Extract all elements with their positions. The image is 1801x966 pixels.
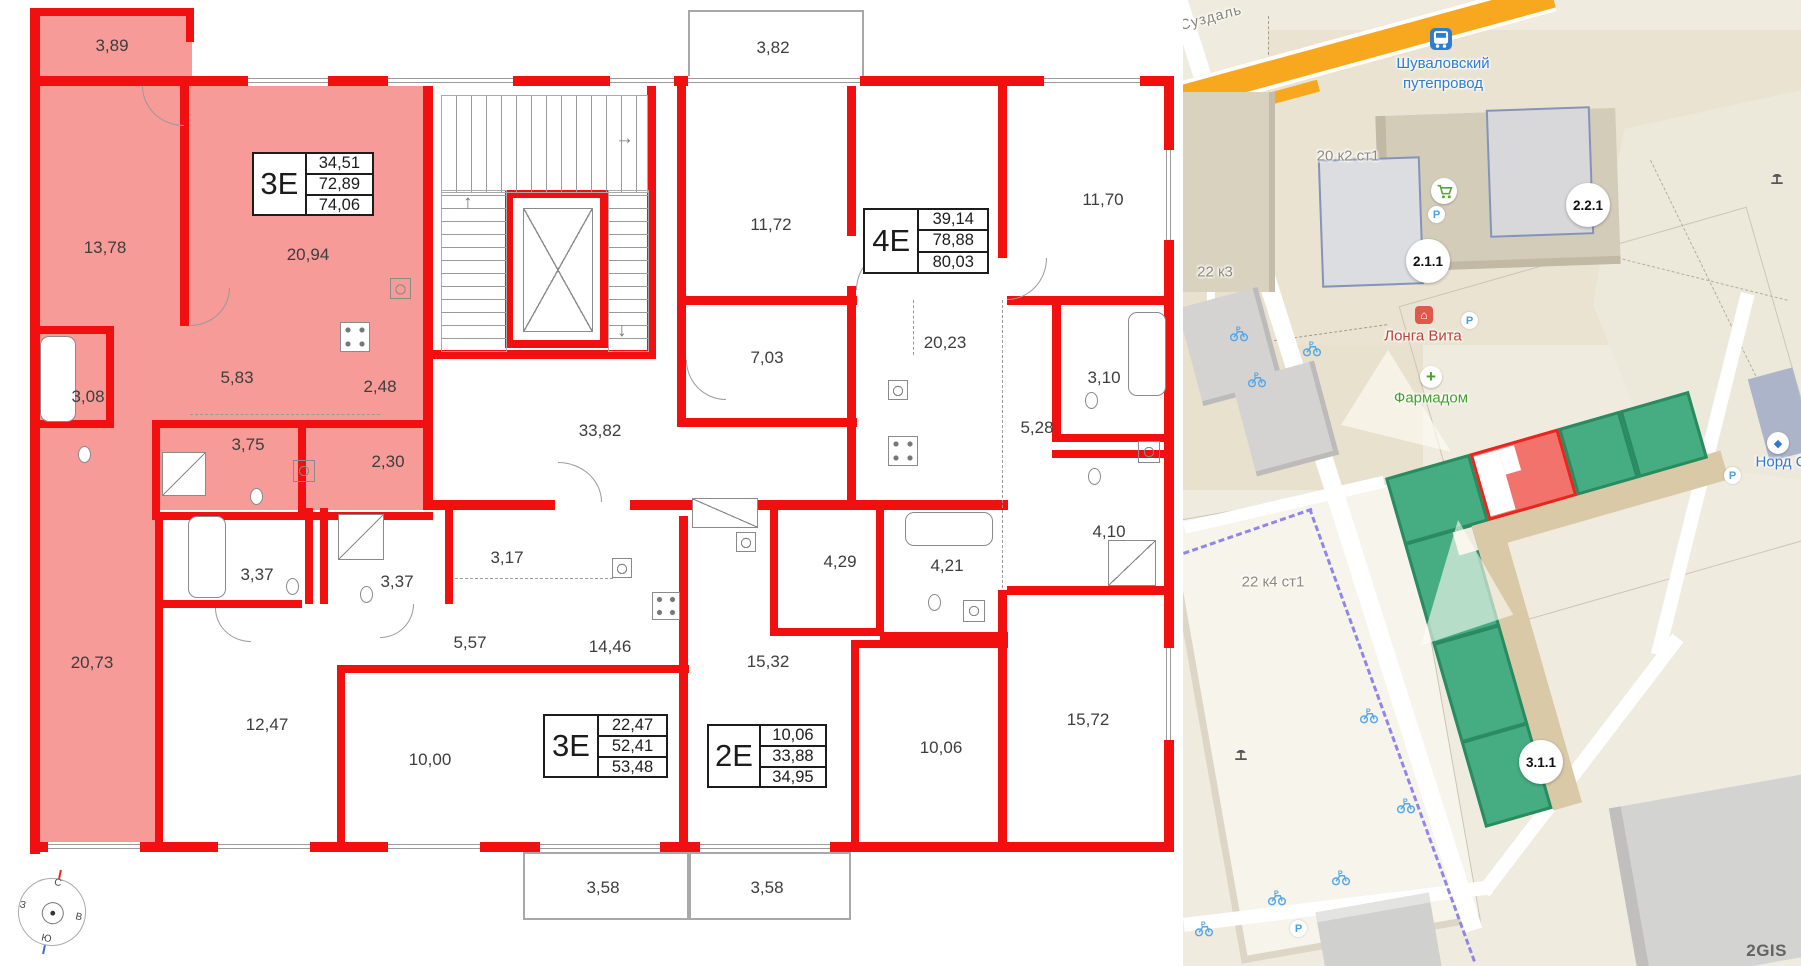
room-area-label: 3,58: [586, 878, 619, 898]
room-area-label: 20,73: [71, 653, 114, 673]
transit-stop-icon[interactable]: [1430, 28, 1452, 50]
toilet-icon: [360, 586, 373, 603]
building-label: 20 к2 ст1: [1317, 148, 1380, 165]
room-area-label: 20,23: [924, 333, 967, 353]
wall-segment: [1007, 586, 1165, 595]
room-area-label: 4,29: [823, 552, 856, 572]
room-area-label: 12,47: [246, 715, 289, 735]
bathtub-icon: [905, 512, 993, 546]
wall-segment: [505, 340, 608, 348]
room-area-label: 3,58: [750, 878, 783, 898]
bike-parking-icon[interactable]: [1359, 708, 1379, 724]
section-badge[interactable]: 3.1.1: [1519, 740, 1563, 784]
wall-segment: [677, 296, 857, 305]
washer-icon: [963, 600, 985, 622]
toilet-icon: [250, 488, 263, 505]
shop-cart-icon[interactable]: [1431, 178, 1457, 204]
fountain-icon: [1233, 746, 1249, 762]
washer-icon: [293, 460, 315, 482]
bike-parking-icon[interactable]: [1331, 870, 1351, 886]
wall-segment: [445, 508, 453, 604]
building-22k3[interactable]: [1183, 92, 1275, 292]
stairs-arrow: →: [615, 128, 634, 150]
wall-segment: [677, 86, 686, 427]
sink-icon: [612, 558, 632, 578]
wall-segment: [847, 86, 856, 236]
bike-parking-icon[interactable]: [1267, 890, 1287, 906]
map-panel[interactable]: → 20 к2: [1183, 0, 1801, 966]
wall-segment: [320, 508, 328, 604]
building-gray: [1609, 774, 1801, 966]
toilet-icon: [78, 446, 91, 463]
apartment-area: 78,88: [919, 231, 987, 252]
wall-segment: [998, 590, 1007, 842]
room-area-label: 5,28: [1020, 418, 1053, 438]
wall-segment: [998, 86, 1007, 258]
apartment-type: 3Е: [545, 716, 599, 776]
room-area-label: 4,10: [1092, 522, 1125, 542]
screenshot: → ↑ ↓: [0, 0, 1801, 966]
window: [248, 76, 328, 86]
wall-segment: [847, 286, 856, 510]
apartment-area: 39,14: [919, 210, 987, 231]
elevator: [523, 208, 593, 332]
apartment-area: 34,51: [307, 154, 372, 175]
wall-segment: [30, 8, 40, 854]
room-area-label: 5,57: [453, 633, 486, 653]
bathtub-icon: [1128, 312, 1166, 396]
apartment-stamp-3e-top: 3Е 34,51 72,89 74,06: [252, 152, 374, 216]
room-area-label: 3,17: [490, 548, 523, 568]
wall-segment: [155, 420, 427, 428]
apartment-area: 52,41: [599, 737, 666, 758]
room-area-label: 11,70: [1082, 190, 1123, 210]
room-area-label: 15,32: [747, 652, 790, 672]
shower-icon: [162, 452, 206, 496]
stove-icon: [652, 592, 680, 620]
wall-segment: [152, 420, 160, 520]
room-area-label: 2,48: [363, 377, 396, 397]
nord-icon[interactable]: ◆: [1767, 432, 1789, 454]
window: [48, 842, 140, 852]
entry-door: [692, 498, 758, 528]
window: [1164, 150, 1174, 240]
room-area-label: 3,08: [71, 387, 104, 407]
apartment-area: 34,95: [761, 768, 825, 787]
window: [1164, 648, 1174, 740]
wall-segment: [337, 673, 345, 842]
highlight-apartment-fill: [34, 86, 424, 510]
highlight-room-fill: [34, 510, 156, 844]
compass-south-tick: [42, 945, 46, 954]
window: [540, 842, 660, 852]
wall-segment: [423, 86, 433, 510]
shower-icon: [338, 514, 384, 560]
apartment-area: 74,06: [307, 196, 372, 215]
sink-icon: [390, 278, 411, 299]
room-area-label: 15,72: [1067, 710, 1110, 730]
dashed-boundary: [455, 578, 613, 579]
parking-icon[interactable]: P: [1290, 920, 1307, 937]
room-area-label: 14,46: [589, 637, 632, 657]
apartment-type: 4Е: [865, 210, 919, 272]
room-area-label: 20,94: [287, 245, 330, 265]
toilet-icon: [1085, 392, 1098, 409]
door-arc: [215, 608, 251, 642]
building-label: 22 к3: [1197, 264, 1233, 281]
room-area-label: 10,00: [409, 750, 452, 770]
wall-segment: [679, 516, 688, 842]
window: [388, 842, 480, 852]
wall-segment: [851, 640, 1008, 648]
nord-label[interactable]: Норд С: [1756, 454, 1801, 471]
wall-segment: [106, 326, 114, 428]
window: [610, 76, 674, 86]
wall-segment: [770, 628, 882, 636]
apartment-stamp-4e: 4Е 39,14 78,88 80,03: [863, 208, 989, 274]
room-area-label: 3,37: [380, 572, 413, 592]
dashed-boundary: [1002, 300, 1003, 588]
section-badge[interactable]: 2.2.1: [1566, 183, 1610, 227]
wall-segment: [30, 8, 194, 16]
stove-icon: [888, 436, 918, 466]
room-area-label: 2,30: [371, 452, 404, 472]
apartment-area: 10,06: [761, 726, 825, 747]
room-area-label: 3,89: [95, 36, 128, 56]
pharmacy-icon[interactable]: +: [1420, 366, 1442, 388]
toilet-icon: [286, 578, 299, 595]
bathtub-icon: [40, 336, 76, 422]
bathtub-icon: [188, 516, 226, 598]
wall-segment: [876, 508, 884, 636]
wall-segment: [34, 326, 114, 334]
wall-segment: [770, 508, 778, 632]
room-area-label: 3,82: [756, 38, 789, 58]
longa-vita-label[interactable]: Лонга Вита: [1384, 328, 1462, 345]
stairs-run: [608, 190, 649, 352]
wall-segment: [155, 520, 163, 842]
compass-rose: С В Ю З: [12, 872, 93, 953]
parking-icon[interactable]: P: [1428, 206, 1445, 223]
apartment-type: 3Е: [254, 154, 307, 214]
transit-stop-label[interactable]: Шуваловский путепровод: [1368, 54, 1518, 95]
apartment-stamp-2e: 2Е 10,06 33,88 34,95: [707, 724, 827, 788]
bike-parking-icon[interactable]: [1396, 798, 1416, 814]
stairs-arrow: ↑: [463, 192, 473, 214]
bike-parking-icon[interactable]: [1302, 341, 1322, 357]
street-label: Суздаль: [1183, 2, 1244, 34]
wall-segment: [677, 418, 857, 427]
wall-segment: [600, 190, 608, 348]
sink-icon: [888, 380, 908, 400]
room-area-label: 5,83: [220, 368, 253, 388]
apartment-stamp-3e-bottom: 3Е 22,47 52,41 53,48: [543, 714, 668, 778]
bike-parking-icon[interactable]: [1194, 921, 1214, 937]
room-area-label: 3,10: [1087, 368, 1120, 388]
stairs-run: [441, 190, 507, 352]
room-area-label: 7,03: [750, 348, 783, 368]
bike-parking-icon[interactable]: [1247, 372, 1267, 388]
window: [700, 842, 830, 852]
wall-segment: [34, 76, 1174, 86]
room-area-label: 33,82: [579, 421, 622, 441]
floor-plan: → ↑ ↓: [0, 0, 1183, 966]
longa-vita-icon[interactable]: ⌂: [1415, 306, 1433, 324]
door-arc: [380, 604, 414, 638]
pharmacy-label[interactable]: Фармадом: [1394, 390, 1468, 407]
window: [218, 842, 310, 852]
fountain-icon: [1769, 170, 1785, 186]
wall-segment: [880, 632, 1008, 640]
window: [688, 76, 860, 86]
door-arc: [1007, 258, 1047, 300]
room-area-label: 4,21: [930, 556, 963, 576]
toilet-icon: [1088, 468, 1101, 485]
room-area-label: 3,37: [240, 565, 273, 585]
room-area-label: 13,78: [84, 238, 127, 258]
stove-icon: [340, 322, 370, 352]
room-area-label: 11,72: [750, 215, 791, 235]
wall-segment: [1007, 296, 1165, 305]
window: [388, 76, 513, 86]
apartment-area: 33,88: [761, 747, 825, 768]
wall-segment: [337, 665, 689, 673]
section-badge[interactable]: 2.1.1: [1406, 239, 1450, 283]
wall-segment: [305, 508, 313, 604]
washer-icon: [1138, 441, 1160, 463]
toilet-icon: [928, 594, 941, 611]
wall-segment: [186, 8, 194, 42]
parking-icon[interactable]: P: [1724, 467, 1741, 484]
apartment-type: 2Е: [709, 726, 761, 786]
wall-segment: [1052, 305, 1061, 435]
wall-segment: [630, 500, 692, 510]
stairs-arrow: ↓: [617, 320, 627, 342]
door-arc: [558, 462, 602, 502]
window: [1044, 76, 1140, 86]
apartment-area: 53,48: [599, 758, 666, 777]
apartment-area: 72,89: [307, 175, 372, 196]
dashed-boundary: [913, 300, 914, 355]
building-label: 22 к4 ст1: [1242, 574, 1305, 591]
2gis-logo[interactable]: 2GIS: [1746, 941, 1787, 961]
sink-icon: [736, 532, 756, 552]
apartment-area: 22,47: [599, 716, 666, 737]
parking-icon[interactable]: P: [1461, 312, 1478, 329]
room-area-label: 10,06: [920, 738, 963, 758]
dashed-boundary: [190, 414, 380, 415]
apartment-area: 80,03: [919, 253, 987, 272]
wall-segment: [160, 600, 302, 608]
room-area-label: 3,75: [231, 435, 264, 455]
shower-icon: [1108, 540, 1156, 586]
wall-segment: [851, 648, 859, 842]
door-arc: [686, 360, 726, 400]
bike-parking-icon[interactable]: [1229, 326, 1249, 342]
